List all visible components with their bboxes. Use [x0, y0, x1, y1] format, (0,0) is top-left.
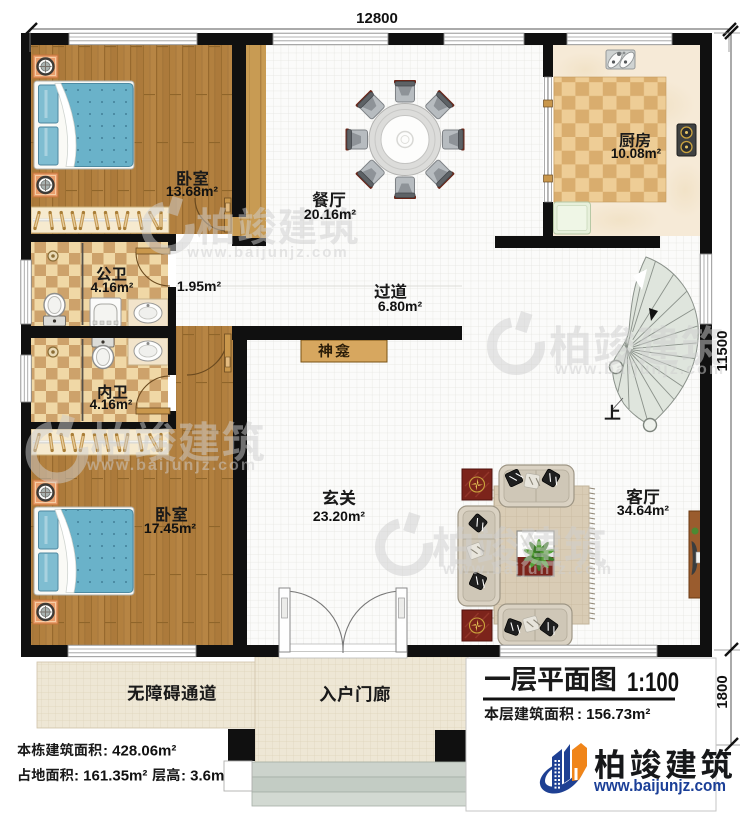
- svg-text:10.08m²: 10.08m²: [611, 146, 662, 161]
- svg-text:: 156.73m²: : 156.73m²: [577, 706, 650, 723]
- svg-text:17.45m²: 17.45m²: [144, 520, 196, 536]
- svg-text:www.baijunjz.com: www.baijunjz.com: [186, 244, 348, 261]
- svg-text:: 428.06m²: : 428.06m²: [103, 743, 176, 760]
- svg-text:4.16m²: 4.16m²: [90, 397, 133, 412]
- svg-text:www.baijunjz.com: www.baijunjz.com: [86, 457, 257, 474]
- svg-text:13.68m²: 13.68m²: [166, 183, 218, 199]
- svg-text:: 3.6m: : 3.6m: [181, 768, 224, 785]
- svg-text:6.80m²: 6.80m²: [378, 298, 423, 314]
- svg-text:23.20m²: 23.20m²: [313, 508, 365, 524]
- svg-text:1.95m²: 1.95m²: [177, 278, 222, 294]
- svg-text:4.16m²: 4.16m²: [91, 280, 134, 295]
- svg-text:www.baijunjz.com: www.baijunjz.com: [442, 561, 613, 578]
- svg-text:: 161.35m²: : 161.35m²: [74, 768, 147, 785]
- svg-text:11500: 11500: [714, 331, 731, 372]
- svg-text:20.16m²: 20.16m²: [304, 206, 356, 222]
- svg-text:www.baijunjz.com: www.baijunjz.com: [554, 361, 725, 378]
- svg-text:www.baijunjz.com: www.baijunjz.com: [593, 777, 726, 795]
- svg-text:1:100: 1:100: [627, 667, 679, 697]
- svg-text:12800: 12800: [356, 10, 398, 27]
- svg-text:34.64m²: 34.64m²: [617, 502, 669, 518]
- svg-text:1800: 1800: [714, 675, 731, 708]
